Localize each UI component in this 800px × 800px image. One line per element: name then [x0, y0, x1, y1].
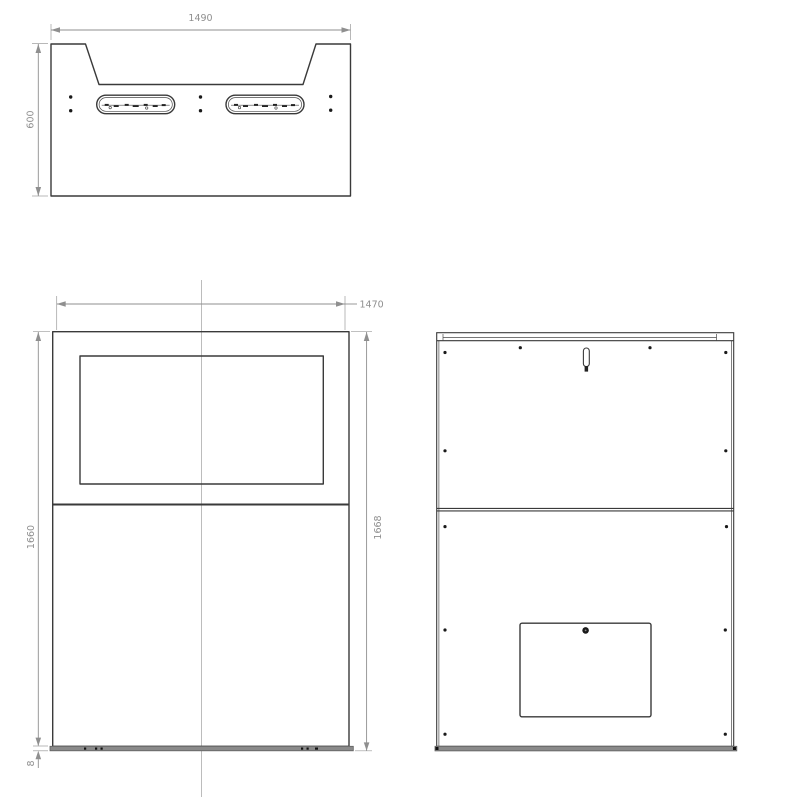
lock-pin — [585, 630, 587, 632]
arrowhead-left-icon — [57, 301, 66, 307]
arrowhead-down-icon — [364, 742, 370, 750]
screw-hole — [519, 346, 522, 349]
arrowhead-up-icon — [364, 332, 370, 341]
keyhole-slot — [583, 348, 589, 372]
screw-hole — [443, 628, 446, 631]
screw-hole — [329, 95, 332, 98]
dim-top-width: 1490 — [51, 13, 351, 40]
dim-front-height-right: 1668 — [351, 332, 384, 751]
front-body-outline — [53, 332, 349, 747]
dim-label-front-width: 1470 — [360, 300, 384, 311]
screw-hole — [443, 733, 446, 736]
base-fixing — [436, 747, 439, 750]
arrowhead-down-icon — [36, 187, 42, 196]
dim-front-height-left: 1660 — [26, 332, 50, 746]
arrowhead-right-icon — [336, 301, 345, 307]
top-view: 1490 600 — [26, 13, 351, 196]
screw-hole — [443, 351, 446, 354]
arrowhead-down-icon — [36, 738, 42, 746]
hatch-outline — [520, 623, 651, 717]
arrowhead-up-icon — [36, 332, 42, 341]
screw-hole — [199, 109, 202, 112]
technical-drawing-canvas: 1490 600 — [0, 0, 800, 800]
top-panel-outline — [51, 44, 351, 196]
base-fixing — [315, 748, 318, 750]
screw-hole — [69, 95, 72, 98]
service-hatch — [520, 623, 651, 717]
screw-hole — [648, 346, 651, 349]
base-fixing — [101, 748, 103, 750]
arrowhead-right-icon — [342, 27, 351, 33]
base-plate-back — [435, 746, 737, 751]
dim-label-top-depth: 600 — [26, 110, 37, 128]
mounting-rail — [437, 334, 734, 341]
base-fixing — [301, 748, 303, 750]
screw-hole — [443, 525, 446, 528]
dim-label-top-width: 1490 — [188, 13, 212, 24]
arrowhead-left-icon — [51, 27, 60, 33]
base-fixing — [95, 748, 97, 750]
back-view — [435, 333, 737, 751]
dim-top-depth: 600 — [26, 44, 49, 197]
dim-front-width: 1470 — [57, 296, 384, 330]
screw-hole — [725, 525, 728, 528]
arrowhead-up-icon — [36, 751, 42, 759]
dim-base-thickness: 8 — [26, 751, 48, 768]
grommet-cutout-right — [226, 95, 304, 114]
keyhole-base — [585, 366, 589, 372]
dim-label-front-height-left: 1660 — [26, 525, 37, 549]
screw-hole — [724, 449, 727, 452]
base-fixing — [733, 747, 736, 750]
drawing-sheet: 1490 600 — [0, 0, 800, 800]
base-fixing — [84, 748, 86, 750]
screw-hole — [199, 95, 202, 98]
screw-hole — [724, 351, 727, 354]
screw-hole — [724, 628, 727, 631]
dim-label-base-thickness: 8 — [26, 760, 37, 766]
back-body-outline — [437, 333, 734, 747]
screw-hole — [69, 109, 72, 112]
base-fixing — [307, 748, 309, 750]
dim-label-front-height-right: 1668 — [373, 515, 384, 539]
keyhole-outline — [583, 348, 589, 367]
screw-hole — [329, 109, 332, 112]
grommet-cutout-left — [97, 95, 175, 114]
screw-hole — [724, 733, 727, 736]
screw-hole — [443, 449, 446, 452]
arrowhead-up-icon — [36, 44, 42, 53]
front-view: 1470 1660 8 1668 — [26, 280, 384, 797]
